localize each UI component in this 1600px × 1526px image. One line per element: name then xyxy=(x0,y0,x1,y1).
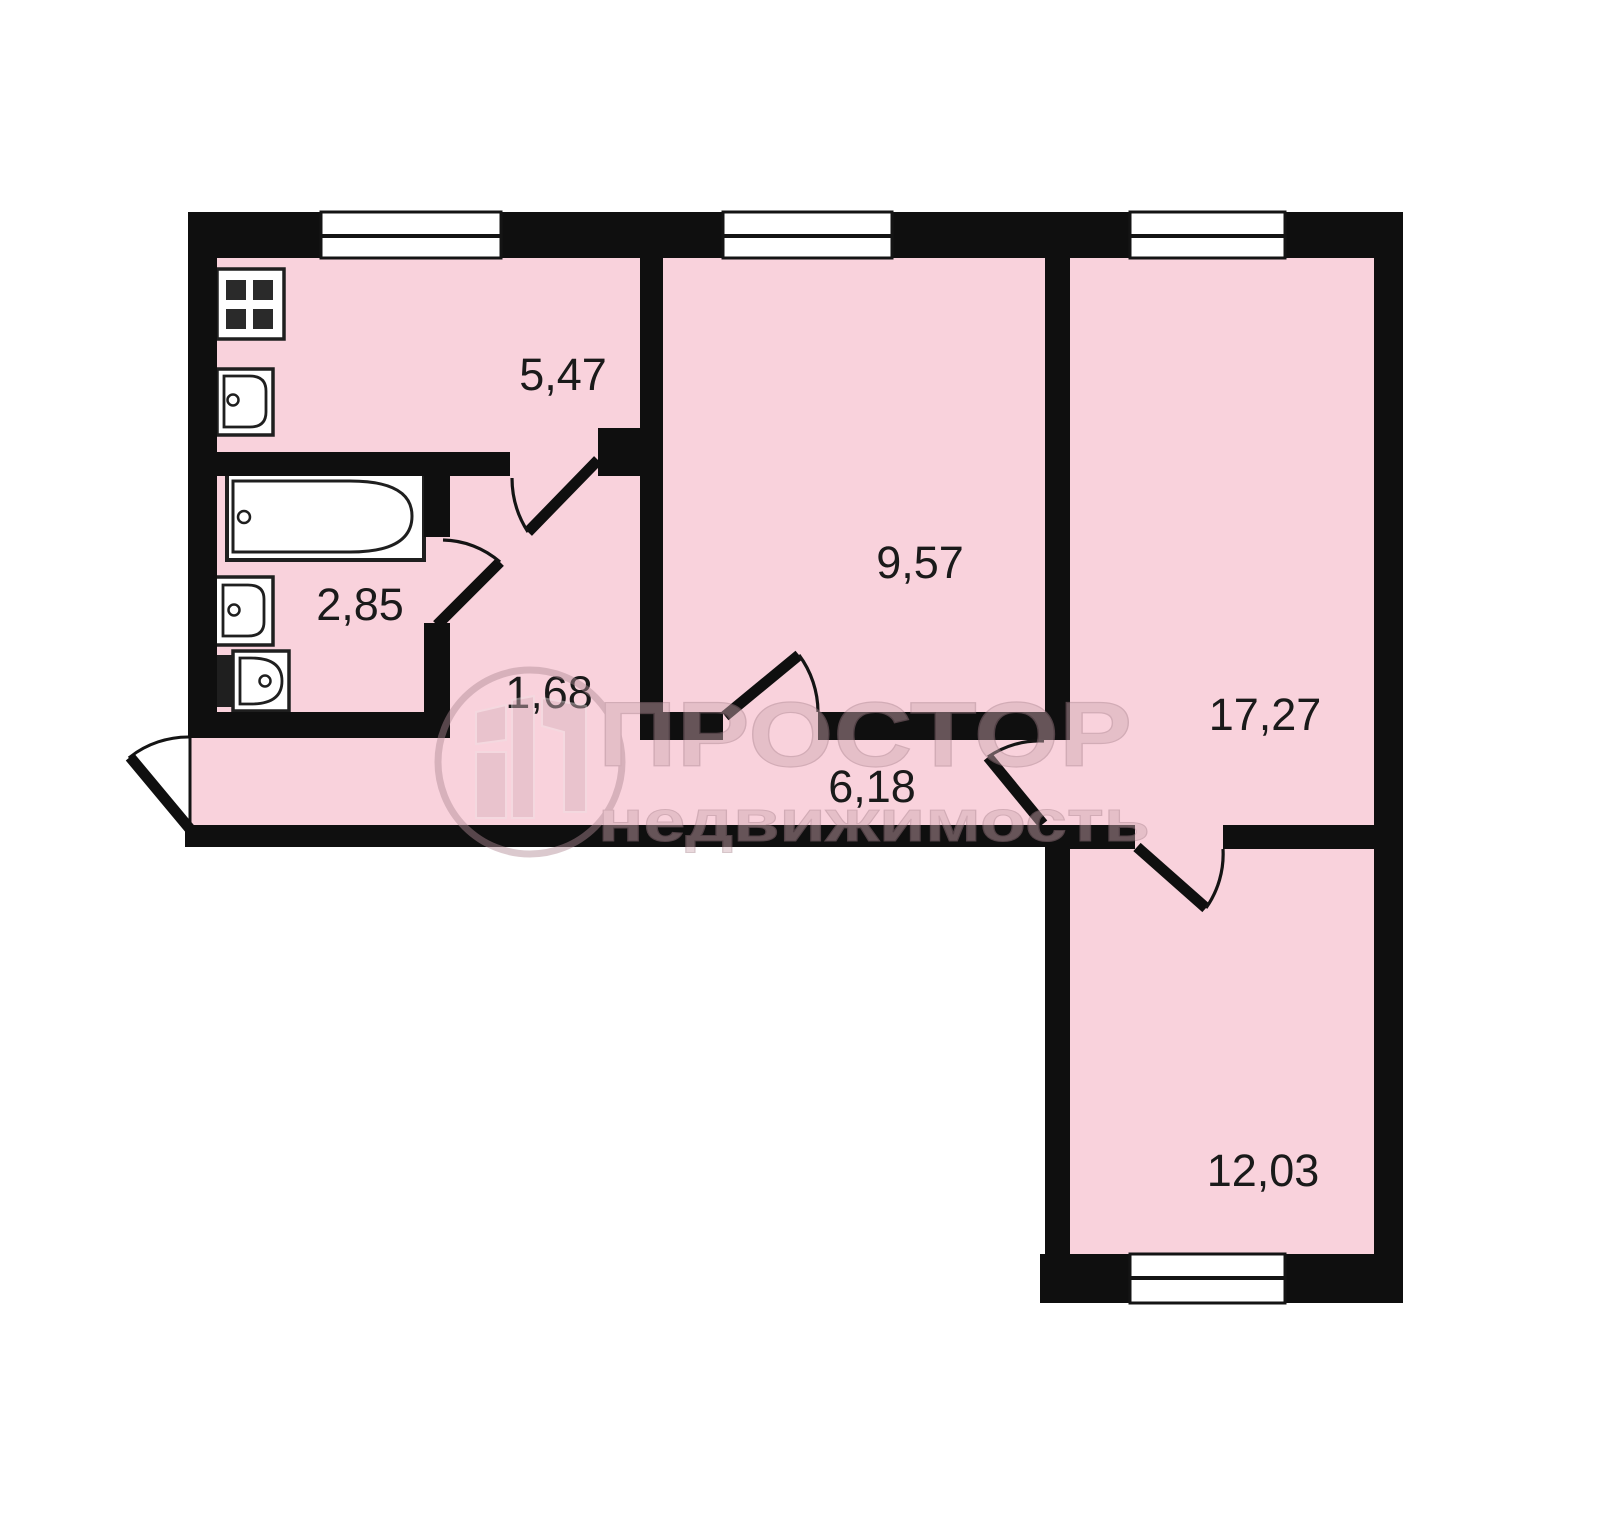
washbasin-icon xyxy=(215,577,273,645)
watermark-tagline: недвижимость xyxy=(598,789,1150,854)
wall xyxy=(1285,1254,1403,1303)
window-room-lower xyxy=(1130,1254,1285,1303)
kitchen-area-label: 5,47 xyxy=(519,349,607,400)
wall xyxy=(188,452,510,476)
watermark-brand: ПРОСТОР xyxy=(598,684,1132,786)
room-right-area-label: 17,27 xyxy=(1209,689,1322,740)
wall xyxy=(188,712,450,738)
bathroom-area-label: 2,85 xyxy=(316,579,404,630)
toilet-icon xyxy=(217,651,289,711)
stove-icon xyxy=(217,269,284,339)
wall xyxy=(424,476,450,537)
floor-plan-page: 5,47 9,57 2,85 1,68 6,18 17,27 12,03 ПРО… xyxy=(0,0,1600,1526)
wall xyxy=(1045,258,1070,740)
wall xyxy=(501,212,723,258)
wall xyxy=(1040,1254,1130,1303)
wall xyxy=(1045,825,1070,1303)
window-kitchen xyxy=(321,212,501,258)
watermark-logo-icon xyxy=(476,696,586,818)
wall xyxy=(892,212,1130,258)
window-room-upper xyxy=(723,212,892,258)
floor-plan: 5,47 9,57 2,85 1,68 6,18 17,27 12,03 ПРО… xyxy=(0,0,1600,1526)
wall xyxy=(1374,212,1403,1303)
bathtub-icon xyxy=(227,473,424,560)
wall xyxy=(640,258,663,740)
window-room-right xyxy=(1130,212,1285,258)
room-lower-area-label: 12,03 xyxy=(1207,1145,1320,1196)
kitchen-sink-icon xyxy=(217,369,273,435)
room-upper-area-label: 9,57 xyxy=(876,537,964,588)
